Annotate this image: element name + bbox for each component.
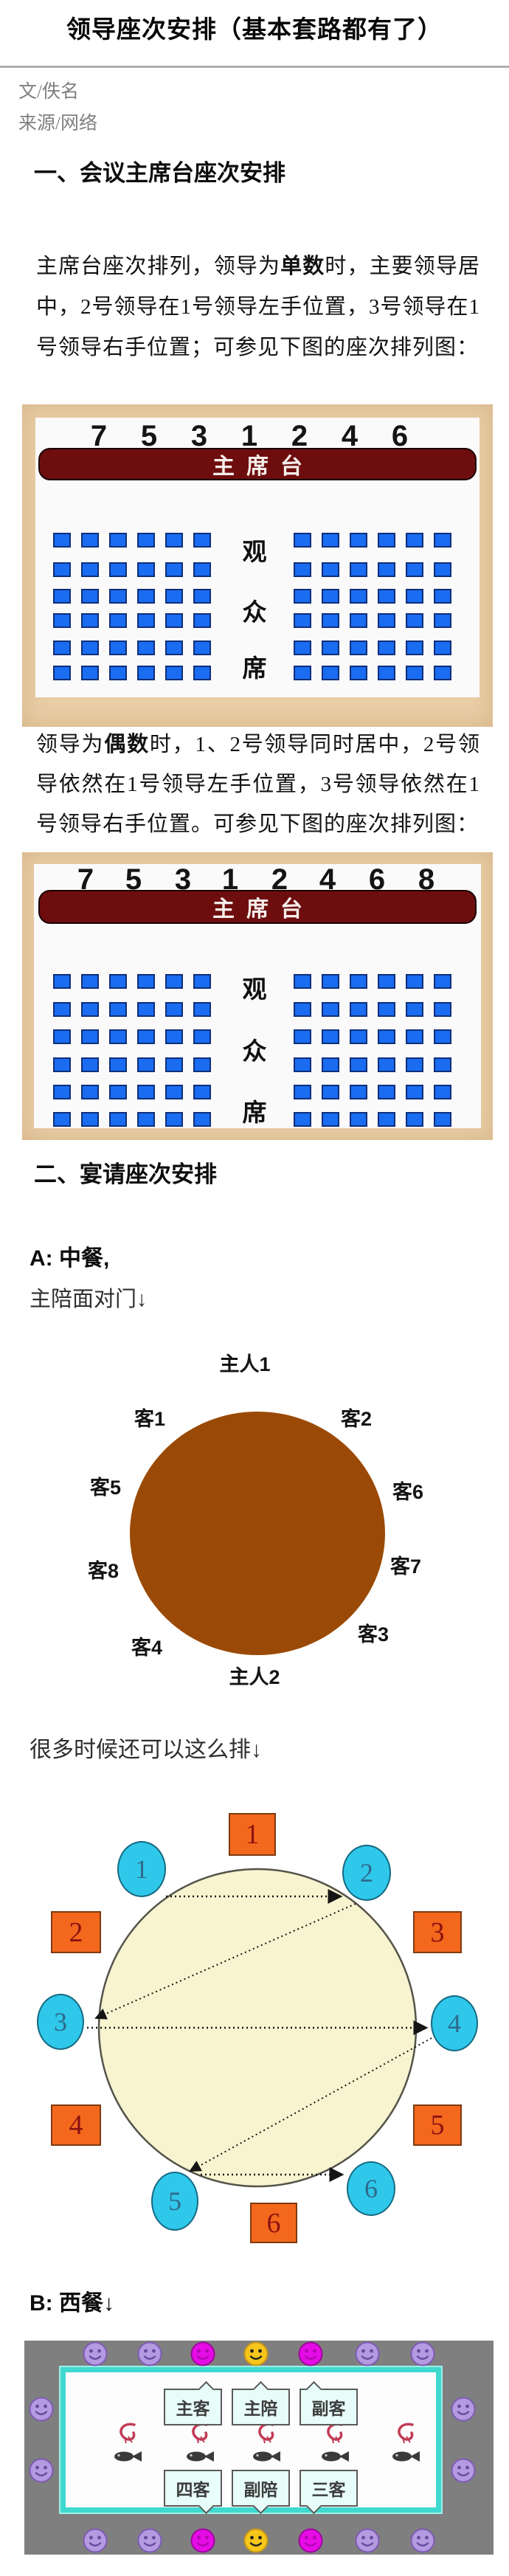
bubble-third-guest: 三客 <box>299 2470 358 2507</box>
oval-seat-1: 1 <box>117 1841 166 1897</box>
podium-seat-number: 5 <box>141 421 157 452</box>
audience-seat <box>81 562 99 577</box>
bubble-label: 四客 <box>176 2476 210 2501</box>
audience-seat <box>322 1002 339 1017</box>
audience-seat <box>109 1085 127 1099</box>
audience-seat <box>294 1029 311 1044</box>
audience-seat <box>193 1029 211 1044</box>
smiley-face <box>83 2341 108 2366</box>
smiley-icon <box>298 2528 323 2553</box>
oval-seat-3: 3 <box>37 1994 84 2050</box>
audience-seat <box>81 589 99 604</box>
audience-seat <box>434 613 451 628</box>
audience-seat <box>109 1112 127 1127</box>
food-set-icon <box>184 2422 217 2466</box>
audience-seat <box>350 1029 367 1044</box>
smiley-icon <box>410 2528 435 2553</box>
audience-label-char: 众 <box>243 593 267 628</box>
audience-seat <box>378 1085 395 1099</box>
label-chinese-dinner: A: 中餐, <box>30 1244 109 1274</box>
audience-seat <box>165 589 183 604</box>
smiley-face <box>451 2458 476 2483</box>
audience-seat <box>53 533 71 548</box>
audience-seat <box>350 1002 367 1017</box>
smiley-face <box>243 2528 269 2553</box>
food-icon <box>184 2422 217 2466</box>
audience-seat <box>350 1112 367 1127</box>
audience-seat <box>294 640 311 655</box>
audience-seat <box>294 589 311 604</box>
audience-seat <box>193 1112 211 1127</box>
square-seat-1: 1 <box>229 1813 276 1856</box>
audience-seat <box>406 589 423 604</box>
food-set-icon <box>319 2422 352 2466</box>
bubble-fourth-guest: 四客 <box>164 2470 222 2507</box>
audience-seat <box>53 1112 71 1127</box>
podium-seat-number: 3 <box>191 421 207 452</box>
bubble-second-guest: 副客 <box>299 2389 358 2425</box>
audience-seat <box>322 974 339 989</box>
audience-seat <box>193 589 211 604</box>
audience-seat <box>406 533 423 548</box>
audience-seat <box>109 666 127 680</box>
audience-seat <box>53 666 71 680</box>
audience-seat <box>406 1002 423 1017</box>
smiley-icon <box>83 2341 108 2366</box>
bubble-label: 主陪 <box>244 2394 278 2420</box>
smiley-icon <box>243 2528 269 2553</box>
seat-label-guest4: 客4 <box>131 1635 162 1660</box>
audience-seat <box>322 1057 339 1072</box>
audience-seat <box>322 666 339 680</box>
byline-source: 来源/网络 <box>18 111 97 137</box>
audience-seat <box>350 640 367 655</box>
bubble-second-host: 副陪 <box>232 2470 290 2507</box>
audience-seat <box>165 1002 183 1017</box>
audience-seat <box>406 1085 423 1099</box>
podium-seat-number: 2 <box>291 421 308 452</box>
audience-label-char: 众 <box>243 1032 267 1067</box>
audience-seat <box>53 562 71 577</box>
audience-seat <box>322 640 339 655</box>
audience-seat <box>322 533 339 548</box>
smiley-icon <box>355 2341 380 2366</box>
audience-seat <box>81 640 99 655</box>
audience-seat <box>378 613 395 628</box>
audience-seat <box>193 533 211 548</box>
audience-seat <box>322 1085 339 1099</box>
smiley-icon <box>190 2341 215 2366</box>
podium-seat-number: 4 <box>319 864 336 895</box>
audience-seat <box>294 562 311 577</box>
smiley-icon <box>355 2528 380 2553</box>
audience-seat <box>294 974 311 989</box>
podium-seat-number: 1 <box>222 864 238 895</box>
audience-seat <box>350 666 367 680</box>
audience-seat <box>137 613 155 628</box>
audience-seat <box>193 1085 211 1099</box>
audience-seat <box>322 1112 339 1127</box>
stage-bar: 主席台 <box>38 448 477 480</box>
audience-seat <box>193 1002 211 1017</box>
smiley-icon <box>451 2458 476 2483</box>
audience-seat <box>294 613 311 628</box>
food-set-icon <box>390 2422 423 2466</box>
section-1-heading: 一、会议主席台座次安排 <box>34 159 285 188</box>
audience-seat <box>378 1029 395 1044</box>
audience-seat <box>137 562 155 577</box>
title-divider <box>0 66 509 68</box>
oval-seat-2: 2 <box>342 1845 391 1901</box>
audience-seat <box>165 640 183 655</box>
audience-seat <box>165 666 183 680</box>
audience-seat <box>434 1029 451 1044</box>
smiley-icon <box>243 2341 269 2366</box>
audience-seat <box>81 1085 99 1099</box>
podium-seat-number: 4 <box>342 421 358 452</box>
seat-label-guest1: 客1 <box>134 1406 165 1432</box>
audience-seat <box>81 974 99 989</box>
bubble-label: 主客 <box>176 2394 210 2420</box>
audience-seat <box>193 613 211 628</box>
audience-seat <box>53 1057 71 1072</box>
audience-seat <box>406 562 423 577</box>
audience-seat <box>434 562 451 577</box>
audience-seat <box>109 1029 127 1044</box>
audience-seat <box>81 1029 99 1044</box>
smiley-icon <box>451 2397 476 2422</box>
paragraph-text: 领导为 <box>36 733 104 756</box>
audience-seat <box>406 613 423 628</box>
smiley-icon <box>29 2458 54 2483</box>
podium-seat-number: 7 <box>77 864 94 895</box>
audience-seat <box>434 589 451 604</box>
audience-seat <box>137 1085 155 1099</box>
audience-seat <box>378 974 395 989</box>
smiley-face <box>137 2341 162 2366</box>
oval-seat-4: 4 <box>431 1995 478 2051</box>
audience-seat <box>109 562 127 577</box>
audience-seat <box>350 974 367 989</box>
smiley-face <box>83 2528 108 2553</box>
smiley-face <box>190 2528 215 2553</box>
audience-seat <box>350 589 367 604</box>
food-icon <box>319 2422 352 2466</box>
audience-seat <box>109 974 127 989</box>
audience-label-char: 观 <box>243 970 267 1005</box>
audience-seat <box>81 533 99 548</box>
audience-seat <box>294 1112 311 1127</box>
smiley-face <box>298 2341 323 2366</box>
audience-seat <box>81 1112 99 1127</box>
audience-seat <box>165 562 183 577</box>
audience-seat <box>53 589 71 604</box>
bubble-label: 副客 <box>312 2394 346 2420</box>
note-alternative-layout: 很多时候还可以这么排↓ <box>30 1736 262 1765</box>
audience-seat <box>109 640 127 655</box>
audience-seat <box>137 1112 155 1127</box>
note-host-faces-door: 主陪面对门↓ <box>30 1285 148 1314</box>
audience-seat <box>294 1085 311 1099</box>
audience-seat <box>378 589 395 604</box>
stage-bar: 主席台 <box>38 890 477 924</box>
audience-seat <box>406 1112 423 1127</box>
audience-seat <box>434 1085 451 1099</box>
audience-seat <box>165 533 183 548</box>
food-icon <box>251 2422 283 2466</box>
smiley-face <box>29 2397 54 2422</box>
audience-seat <box>350 1057 367 1072</box>
audience-seat <box>109 533 127 548</box>
podium-seat-number: 1 <box>241 421 257 452</box>
audience-seat <box>434 1002 451 1017</box>
seat-label-guest2: 客2 <box>341 1406 372 1432</box>
square-seat-4: 4 <box>51 2104 101 2146</box>
audience-label-char: 席 <box>243 1093 267 1128</box>
seat-label-guest8: 客8 <box>88 1558 119 1584</box>
audience-seat <box>81 613 99 628</box>
audience-seat <box>350 613 367 628</box>
paragraph-odd-rule: 主席台座次排列，领导为单数时，主要领导居中，2号领导在1号领导左手位置，3号领导… <box>36 246 480 368</box>
square-seat-2: 2 <box>51 1911 101 1953</box>
audience-seat <box>378 1002 395 1017</box>
seat-label-host1: 主人1 <box>219 1352 270 1377</box>
food-icon <box>390 2422 423 2466</box>
bubble-main-guest: 主客 <box>164 2389 222 2425</box>
seat-label-guest7: 客7 <box>390 1554 421 1579</box>
smiley-icon <box>298 2341 323 2366</box>
square-seat-3: 3 <box>413 1911 462 1953</box>
audience-seat <box>378 640 395 655</box>
audience-seat <box>378 562 395 577</box>
audience-seat <box>294 1057 311 1072</box>
audience-seat <box>137 533 155 548</box>
audience-seat <box>294 1002 311 1017</box>
oval-seat-6: 6 <box>347 2161 395 2216</box>
audience-seat <box>109 1002 127 1017</box>
audience-seat <box>137 640 155 655</box>
audience-seat <box>81 666 99 680</box>
podium-seat-number: 8 <box>418 864 434 895</box>
audience-seat <box>53 1002 71 1017</box>
podium-diagram-odd: 主席台 7531246观众席 <box>22 404 493 727</box>
smiley-face <box>355 2528 380 2553</box>
bubble-label: 副陪 <box>244 2476 278 2501</box>
seat-label-guest6: 客6 <box>392 1479 423 1505</box>
audience-seat <box>53 974 71 989</box>
audience-seat <box>406 974 423 989</box>
audience-seat <box>137 974 155 989</box>
seat-label-guest5: 客5 <box>90 1475 121 1500</box>
audience-seat <box>406 640 423 655</box>
audience-seat <box>434 533 451 548</box>
audience-seat <box>193 666 211 680</box>
article-page: 领导座次安排（基本套路都有了） 文/佚名 来源/网络 一、会议主席台座次安排 主… <box>0 0 509 2576</box>
audience-seat <box>109 613 127 628</box>
food-set-icon <box>251 2422 283 2466</box>
alt-table-circle <box>99 1869 416 2186</box>
audience-seat <box>378 1057 395 1072</box>
podium-seat-number: 5 <box>125 864 142 895</box>
square-seat-6: 6 <box>250 2203 297 2243</box>
audience-seat <box>193 1057 211 1072</box>
smiley-icon <box>410 2341 435 2366</box>
audience-seat <box>193 562 211 577</box>
audience-seat <box>53 1085 71 1099</box>
audience-seat <box>434 974 451 989</box>
bubble-main-host: 主陪 <box>232 2389 290 2425</box>
round-table <box>130 1412 385 1655</box>
audience-seat <box>165 1085 183 1099</box>
smiley-face <box>355 2341 380 2366</box>
audience-seat <box>137 1029 155 1044</box>
audience-seat <box>165 613 183 628</box>
smiley-icon <box>137 2528 162 2553</box>
podium-seat-number: 6 <box>369 864 385 895</box>
audience-seat <box>322 613 339 628</box>
audience-seat <box>53 1029 71 1044</box>
smiley-icon <box>190 2528 215 2553</box>
smiley-icon <box>137 2341 162 2366</box>
smiley-face <box>451 2397 476 2422</box>
audience-seat <box>165 974 183 989</box>
bold-keyword-odd: 单数 <box>280 255 325 278</box>
audience-seat <box>193 640 211 655</box>
audience-seat <box>406 666 423 680</box>
audience-seat <box>294 533 311 548</box>
page-title: 领导座次安排（基本套路都有了） <box>0 13 509 46</box>
seat-label-host2: 主人2 <box>229 1665 280 1690</box>
audience-seat <box>434 1057 451 1072</box>
audience-seat <box>109 589 127 604</box>
audience-seat <box>294 666 311 680</box>
audience-seat <box>81 1002 99 1017</box>
smiley-face <box>410 2341 435 2366</box>
audience-seat <box>53 613 71 628</box>
podium-seat-number: 2 <box>271 864 288 895</box>
audience-seat <box>378 666 395 680</box>
food-icon <box>112 2422 145 2466</box>
audience-seat <box>109 1057 127 1072</box>
smiley-face <box>190 2341 215 2366</box>
smiley-face <box>410 2528 435 2553</box>
audience-seat <box>165 1029 183 1044</box>
bold-keyword-even: 偶数 <box>104 733 150 756</box>
smiley-face <box>298 2528 323 2553</box>
section-2-heading: 二、宴请座次安排 <box>34 1160 217 1189</box>
smiley-icon <box>83 2528 108 2553</box>
byline-author: 文/佚名 <box>18 80 79 105</box>
audience-seat <box>322 589 339 604</box>
podium-seat-number: 3 <box>175 864 191 895</box>
podium-diagram-even: 主席台 75312468观众席 <box>22 852 493 1140</box>
audience-seat <box>137 1002 155 1017</box>
audience-label-char: 席 <box>243 649 267 684</box>
audience-seat <box>165 1112 183 1127</box>
podium-seat-number: 7 <box>91 421 107 452</box>
square-seat-5: 5 <box>413 2104 462 2146</box>
audience-seat <box>406 1029 423 1044</box>
podium-seat-number: 6 <box>392 421 408 452</box>
audience-seat <box>406 1057 423 1072</box>
smiley-face <box>243 2341 269 2366</box>
audience-seat <box>378 1112 395 1127</box>
audience-seat <box>137 666 155 680</box>
audience-seat <box>322 562 339 577</box>
western-table-diagram: 主客 主陪 副客 四客 副陪 三客 <box>24 2341 494 2555</box>
smiley-icon <box>29 2397 54 2422</box>
audience-seat <box>350 1085 367 1099</box>
audience-seat <box>165 1057 183 1072</box>
audience-seat <box>350 533 367 548</box>
smiley-face <box>137 2528 162 2553</box>
paragraph-text: 主席台座次排列，领导为 <box>36 255 280 278</box>
seat-label-guest3: 客3 <box>358 1622 389 1647</box>
audience-seat <box>378 533 395 548</box>
audience-seat <box>434 666 451 680</box>
smiley-face <box>29 2458 54 2483</box>
bubble-label: 三客 <box>312 2476 346 2501</box>
audience-seat <box>322 1029 339 1044</box>
audience-seat <box>53 640 71 655</box>
audience-seat <box>81 1057 99 1072</box>
audience-seat <box>350 562 367 577</box>
paragraph-even-rule: 领导为偶数时，1、2号领导同时居中，2号领导依然在1号领导左手位置，3号领导依然… <box>36 725 480 844</box>
audience-seat <box>137 589 155 604</box>
audience-seat <box>434 640 451 655</box>
audience-seat <box>137 1057 155 1072</box>
oval-seat-5: 5 <box>151 2172 198 2231</box>
audience-seat <box>193 974 211 989</box>
audience-label-char: 观 <box>243 532 267 567</box>
audience-seat <box>434 1112 451 1127</box>
food-set-icon <box>112 2422 145 2466</box>
